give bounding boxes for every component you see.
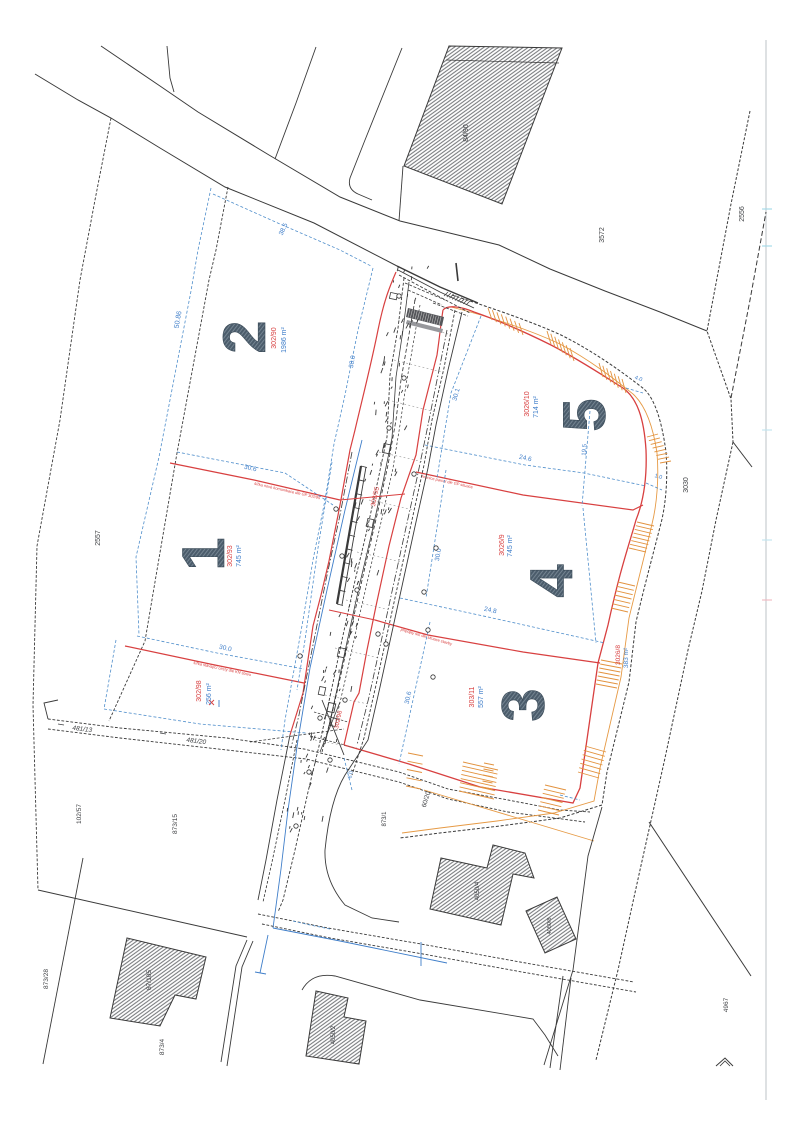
svg-text:745 m²: 745 m² bbox=[507, 534, 514, 556]
svg-text:2557: 2557 bbox=[95, 530, 102, 546]
svg-text:3: 3 bbox=[490, 688, 557, 721]
svg-text:302/90: 302/90 bbox=[271, 327, 278, 349]
svg-text:303/11: 303/11 bbox=[469, 686, 476, 707]
svg-text:2: 2 bbox=[211, 320, 278, 353]
svg-text:1986 m²: 1986 m² bbox=[281, 326, 288, 352]
svg-text:3030: 3030 bbox=[683, 477, 690, 493]
svg-text:256 m²: 256 m² bbox=[206, 682, 213, 704]
svg-text:3026/9: 3026/9 bbox=[499, 534, 506, 556]
svg-text:102/57: 102/57 bbox=[76, 804, 83, 824]
svg-text:383 m²: 383 m² bbox=[623, 647, 630, 668]
svg-text:4967: 4967 bbox=[723, 997, 730, 1012]
svg-text:557 m²: 557 m² bbox=[478, 685, 485, 707]
svg-text:745 m²: 745 m² bbox=[236, 544, 243, 566]
svg-text:873/28: 873/28 bbox=[43, 969, 50, 989]
svg-text:302/98: 302/98 bbox=[196, 680, 203, 702]
svg-text:3026/10: 3026/10 bbox=[524, 391, 531, 416]
svg-text:873/4: 873/4 bbox=[159, 1038, 166, 1055]
svg-text:4050/2: 4050/2 bbox=[331, 1025, 337, 1044]
svg-text:873/15: 873/15 bbox=[172, 814, 179, 834]
svg-text:3572: 3572 bbox=[599, 227, 606, 243]
svg-text:5: 5 bbox=[551, 398, 618, 431]
svg-text:2556: 2556 bbox=[739, 206, 746, 222]
svg-text:302/93: 302/93 bbox=[227, 545, 234, 567]
svg-text:4050/4: 4050/4 bbox=[475, 881, 481, 900]
svg-text:4: 4 bbox=[518, 564, 585, 598]
svg-text:87/105: 87/105 bbox=[146, 970, 153, 990]
svg-text:3026/8: 3026/8 bbox=[615, 645, 622, 665]
svg-text:714 m²: 714 m² bbox=[533, 395, 540, 417]
svg-text:4050/8: 4050/8 bbox=[547, 918, 553, 935]
svg-text:84/90: 84/90 bbox=[463, 124, 470, 142]
svg-text:19.5: 19.5 bbox=[582, 443, 589, 456]
svg-text:873/1: 873/1 bbox=[382, 811, 388, 827]
